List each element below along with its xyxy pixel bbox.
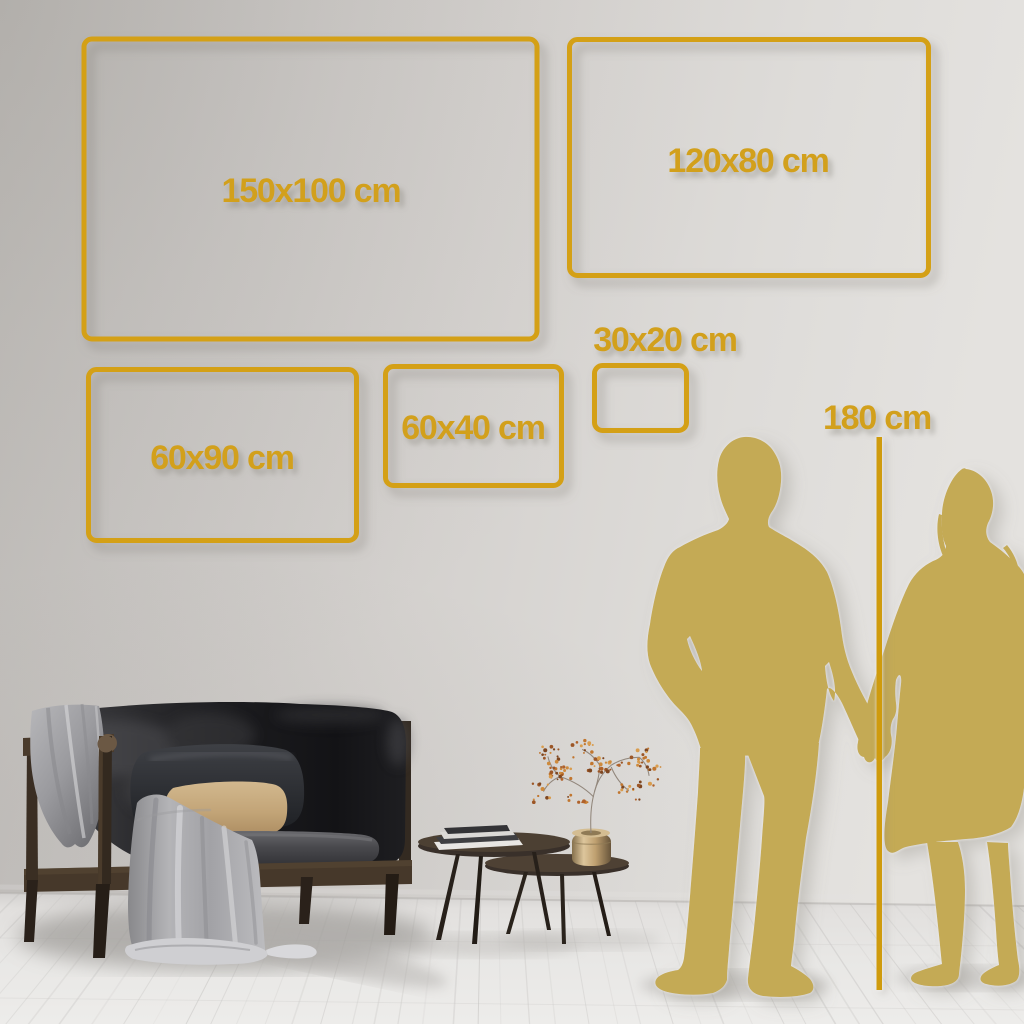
svg-text:30x20 cm: 30x20 cm bbox=[593, 321, 737, 359]
svg-text:60x90 cm: 60x90 cm bbox=[150, 439, 294, 477]
svg-text:120x80 cm: 120x80 cm bbox=[667, 142, 828, 180]
svg-text:60x40 cm: 60x40 cm bbox=[401, 409, 545, 447]
svg-text:150x100 cm: 150x100 cm bbox=[222, 172, 401, 210]
svg-text:180 cm: 180 cm bbox=[823, 399, 931, 437]
